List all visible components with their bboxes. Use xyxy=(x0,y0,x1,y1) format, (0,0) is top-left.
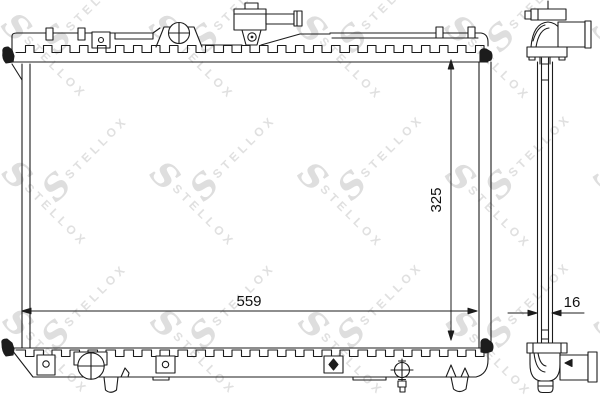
radiator-diagram: 559 325 16 xyxy=(0,0,600,400)
arrow-down-icon xyxy=(448,331,454,340)
top-serration xyxy=(16,46,486,53)
filler-dome-inner xyxy=(533,25,549,47)
front-view xyxy=(2,3,493,392)
left-channel-slant xyxy=(12,64,22,80)
side-core-ticks xyxy=(542,64,549,339)
side-cap-tab xyxy=(525,11,531,19)
top-tab xyxy=(468,27,475,38)
cap-bracket-pin xyxy=(251,36,254,39)
arrow-right-icon xyxy=(528,310,537,316)
mount-bracket xyxy=(156,356,175,373)
mount-bracket xyxy=(37,355,55,375)
height-dimension-label: 325 xyxy=(428,187,445,212)
side-view xyxy=(525,1,597,393)
bottom-lip xyxy=(153,377,169,380)
top-tank-left-edge xyxy=(12,33,46,62)
arrow-up-icon xyxy=(448,60,454,69)
dimension-height xyxy=(448,60,454,340)
dimensions xyxy=(22,60,584,340)
shelf-slant xyxy=(153,28,160,33)
top-tank xyxy=(3,3,492,63)
bottom-tab xyxy=(451,377,468,392)
dimension-thickness xyxy=(508,310,584,316)
drawing-canvas: SSTELLOXSSTELLOXSSTELLOXSSTELLOXSSTELLOX… xyxy=(0,0,600,400)
petcock-stem-tip xyxy=(400,387,405,392)
petcock-cross xyxy=(391,359,413,381)
top-tab xyxy=(46,28,53,40)
top-edge-right xyxy=(330,33,488,46)
overflow-pipe-end xyxy=(294,11,302,26)
top-shelf xyxy=(115,33,153,39)
top-collar xyxy=(527,47,567,57)
top-edge-mid xyxy=(202,34,330,45)
petcock-stem xyxy=(398,381,406,387)
outlet-pipe-flange xyxy=(588,352,597,382)
drain-tab xyxy=(104,377,118,392)
clinch-tab-top-right xyxy=(480,49,492,62)
collar-feet xyxy=(529,57,565,64)
inlet-pipe-flange xyxy=(585,21,591,48)
outlet-pipe xyxy=(560,355,588,380)
arrow-right-icon xyxy=(468,308,477,314)
filler-cap-top xyxy=(245,3,258,9)
bottom-flap xyxy=(121,368,129,377)
right-channel xyxy=(479,62,491,348)
top-tab xyxy=(436,27,443,38)
side-cap xyxy=(531,9,566,20)
left-channel xyxy=(22,64,30,348)
clinch-tab-bottom-left xyxy=(2,339,14,356)
thickness-dimension-label: 16 xyxy=(564,294,581,311)
bottom-foot xyxy=(538,381,553,393)
filler-cap-block xyxy=(234,9,266,30)
bottom-lip xyxy=(353,377,386,380)
overflow-pipe xyxy=(266,14,294,24)
side-core-lines xyxy=(538,58,553,343)
tab-legs xyxy=(446,365,469,377)
arrow-left-icon xyxy=(22,308,31,314)
inlet-pipe xyxy=(558,22,585,47)
width-dimension-label: 559 xyxy=(236,293,261,310)
bottom-tank xyxy=(2,339,493,392)
top-tab xyxy=(78,28,85,40)
arrow-left-icon xyxy=(552,310,561,316)
